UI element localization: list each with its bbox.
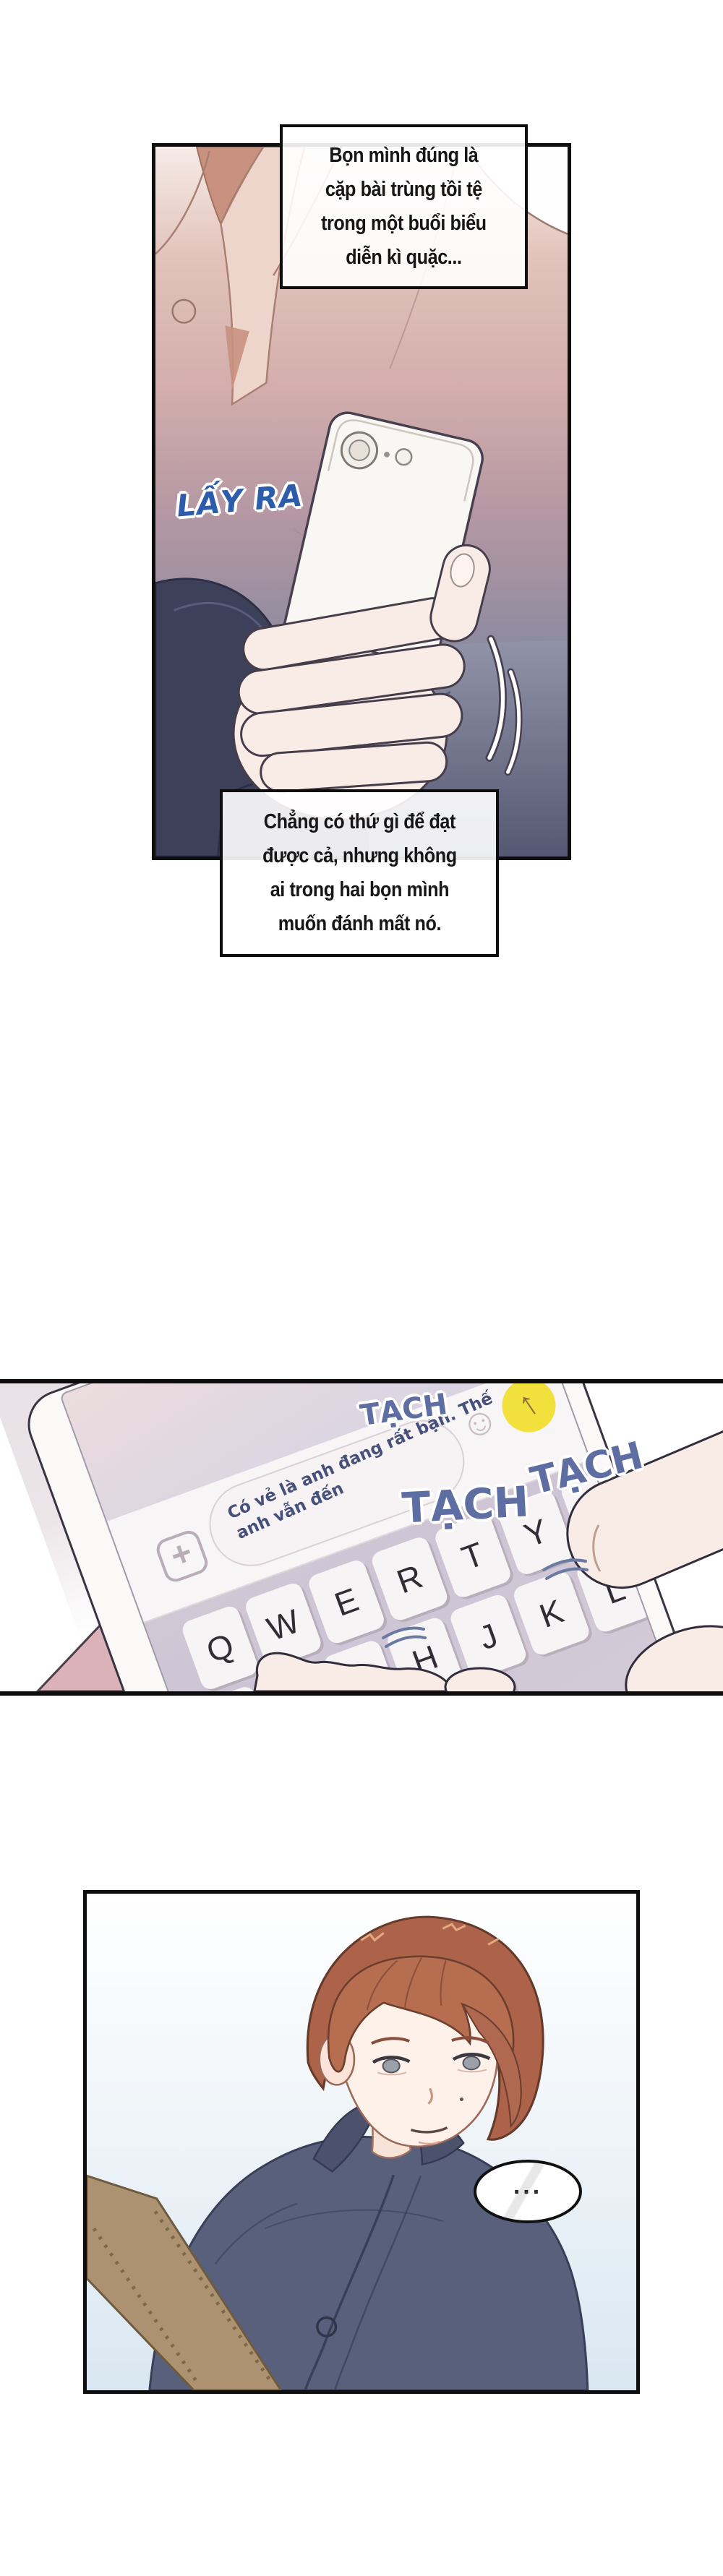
typing-knuckle	[445, 1668, 515, 1691]
speech-ellipsis: ...	[476, 2163, 579, 2209]
sfx-tap-2: TẠCH	[401, 1477, 530, 1532]
narration-text-middle: Chẳng có thứ gì để đạt được cả, nhưng kh…	[262, 805, 457, 941]
panel-boy-silent: ...	[83, 1890, 640, 2394]
second-finger	[614, 1610, 723, 1691]
speech-bubble: ...	[474, 2160, 582, 2223]
typing-hand	[254, 1653, 453, 1691]
beauty-mark	[460, 2098, 463, 2101]
narration-box-middle: Chẳng có thứ gì để đạt được cả, nhưng kh…	[220, 789, 499, 957]
comic-page: Bọn mình đúng là cặp bài trùng tồi tệ tr…	[0, 0, 723, 2576]
panel3-artwork	[87, 1894, 636, 2390]
narration-box-top: Bọn mình đúng là cặp bài trùng tồi tệ tr…	[280, 124, 528, 289]
eye-left-iris	[383, 2059, 400, 2072]
narration-text-top: Bọn mình đúng là cặp bài trùng tồi tệ tr…	[321, 139, 487, 275]
panel-typing-message: + Có vẻ là anh đang rất bận. Thế anh vẫn…	[0, 1379, 723, 1696]
eye-right-iris	[463, 2056, 480, 2069]
tap-marks	[383, 1560, 587, 1647]
typing-hands-art	[0, 1383, 723, 1691]
